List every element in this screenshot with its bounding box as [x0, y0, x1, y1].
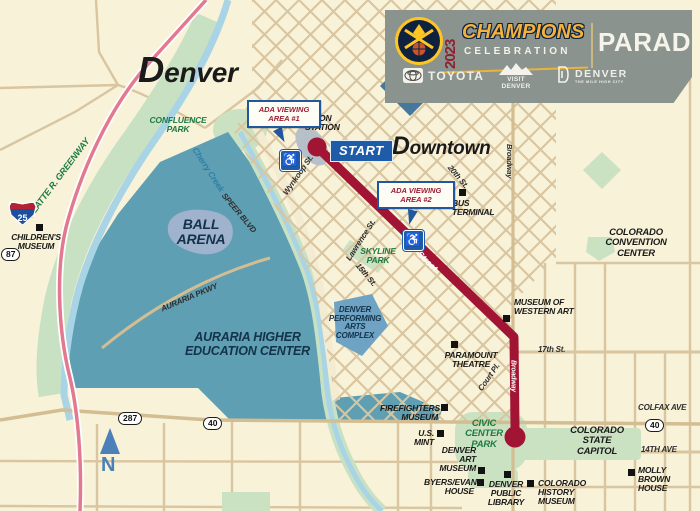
label-public-library: DENVER PUBLIC LIBRARY [487, 480, 525, 508]
route-start-point [308, 138, 327, 157]
denver-sponsor-label: DENVER [575, 68, 628, 80]
wheelchair-icon-2: ♿ [403, 230, 424, 251]
banner-title: CHAMPIONS [462, 21, 584, 44]
label-childrens-museum: CHILDREN'S MUSEUM [0, 233, 72, 251]
poi-marker-denver-art-museum [478, 467, 485, 474]
denver-sponsor-tagline: THE MILE HIGH CITY [575, 80, 624, 84]
label-denver-art-museum: DENVER ART MUSEUM [436, 446, 476, 474]
label-ball-arena: BALL ARENA [170, 217, 232, 247]
label-broadway-route: Broadway [509, 360, 517, 410]
visit-denver-label: VISIT DENVER [493, 76, 539, 90]
toyota-logo-icon [403, 68, 423, 83]
label-auraria: AURARIA HIGHER EDUCATION CENTER [175, 331, 320, 358]
poi-marker-history-museum [527, 480, 534, 487]
poi-marker-public-library [504, 471, 511, 478]
label-firefighters: FIREFIGHTERS MUSEUM [380, 404, 438, 422]
label-history-museum: COLORADO HISTORY MUSEUM [538, 479, 586, 507]
city-label: Denver [138, 50, 238, 89]
parade-map: 25 87 287 40 40 N Denver Downtown CONFLU… [0, 0, 700, 511]
downtown-label: Downtown [392, 134, 491, 161]
poi-marker-paramount [451, 341, 458, 348]
label-bus-terminal: BUS TERMINAL [452, 199, 500, 217]
champions-celebration-banner: 2023 CHAMPIONS CELEBRATION PARADE TOYOTA… [385, 10, 692, 103]
denver-logo-icon [557, 66, 571, 83]
highway-40-west-shield: 40 [203, 417, 222, 430]
start-badge: START [330, 140, 393, 162]
banner-divider [591, 23, 593, 68]
label-14th-ave: 14TH AVE [641, 446, 677, 455]
label-broadway-north: Broadway [505, 144, 513, 200]
poi-marker-childrens-museum [36, 224, 43, 231]
highway-287-shield: 287 [118, 412, 142, 425]
label-state-capitol: COLORADO STATE CAPITOL [568, 426, 626, 457]
label-convention-center: COLORADO CONVENTION CENTER [600, 228, 672, 259]
poi-marker-bus-terminal [459, 189, 466, 196]
north-arrow-icon [100, 428, 120, 454]
ada-viewing-area-1-callout: ADA VIEWING AREA #1 [247, 100, 321, 128]
poi-marker-museum-western-art [503, 315, 510, 322]
visit-denver-logo-icon [497, 62, 535, 75]
north-label: N [101, 454, 115, 477]
label-colfax-ave: COLFAX AVE [638, 404, 686, 413]
label-performing-arts: DENVER PERFORMING ARTS COMPLEX [325, 306, 385, 341]
banner-subtitle: CELEBRATION [464, 46, 571, 57]
highway-40-colfax-shield: 40 [645, 419, 664, 432]
ada-viewing-area-2-callout: ADA VIEWING AREA #2 [377, 181, 455, 209]
label-confluence-park: CONFLUENCE PARK [146, 116, 210, 134]
label-molly-brown: MOLLY BROWN HOUSE [638, 466, 682, 494]
poi-marker-molly-brown [628, 469, 635, 476]
nuggets-logo-icon [393, 15, 445, 67]
banner-year: 2023 [442, 17, 459, 69]
label-17th-st-east: 17th St. [538, 346, 565, 355]
label-us-mint: U.S. MINT [404, 429, 434, 447]
label-paramount: PARAMOUNT THEATRE [436, 351, 506, 369]
banner-parade-label: PARADE [598, 27, 700, 58]
poi-marker-us-mint [437, 430, 444, 437]
label-byers-evans: BYERS/EVANS HOUSE [424, 478, 474, 496]
toyota-label: TOYOTA [428, 69, 484, 83]
label-museum-western-art: MUSEUM OF WESTERN ART [514, 298, 576, 316]
wheelchair-icon-1: ♿ [280, 150, 301, 171]
poi-marker-firefighters [441, 404, 448, 411]
